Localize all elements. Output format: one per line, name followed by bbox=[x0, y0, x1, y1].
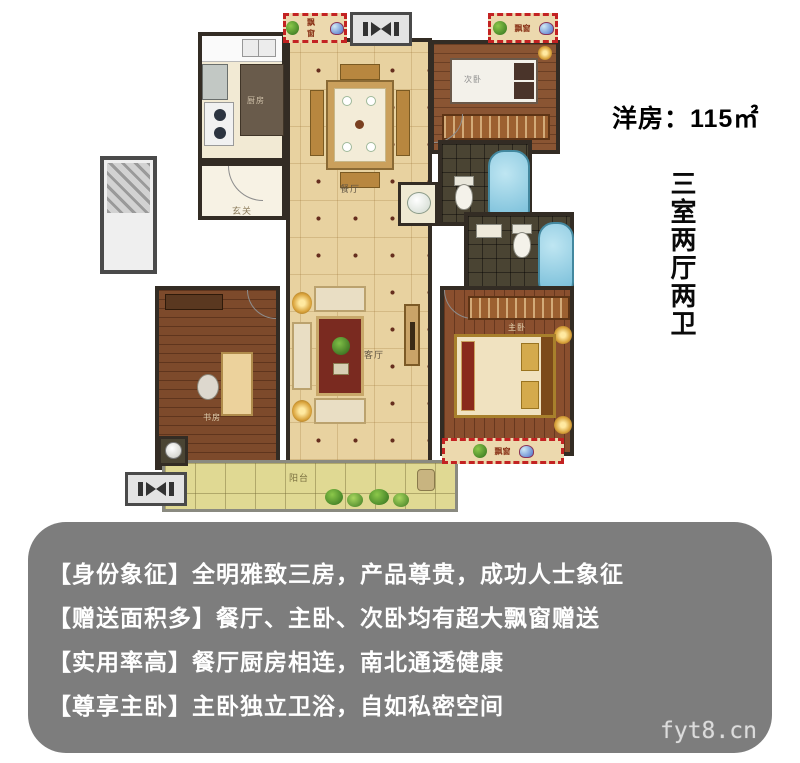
room-balcony: 阳台 bbox=[162, 460, 458, 512]
watermark: fyt8.cn bbox=[660, 718, 757, 744]
headboard bbox=[541, 337, 553, 415]
room-label-study: 书房 bbox=[203, 412, 221, 423]
bay-window-dining: 飘窗 bbox=[283, 13, 347, 43]
plant-icon bbox=[369, 489, 389, 505]
shell-icon bbox=[519, 445, 534, 458]
room-dining-living: 餐厅 客厅 bbox=[286, 38, 432, 470]
bedside-lamp bbox=[538, 46, 552, 60]
floor-lamp bbox=[292, 400, 312, 422]
plate-icon bbox=[342, 142, 352, 152]
kitchen-counter bbox=[202, 36, 282, 62]
basin-nook bbox=[398, 182, 438, 226]
sofa-side bbox=[292, 322, 312, 390]
stairs bbox=[107, 163, 150, 213]
dining-chair bbox=[310, 90, 324, 156]
ac-unit-icon bbox=[371, 22, 381, 36]
room-foyer: 玄关 bbox=[198, 162, 286, 220]
bed-secondary: 次卧 bbox=[450, 58, 538, 104]
bay-window-label: 飘窗 bbox=[515, 23, 531, 34]
shell-icon bbox=[330, 22, 344, 35]
ac-unit-top bbox=[350, 12, 412, 46]
pillow bbox=[521, 343, 539, 371]
bay-window-master: 飘窗 bbox=[442, 438, 564, 464]
ac-unit-icon bbox=[363, 22, 368, 36]
room-label-master: 主卧 bbox=[508, 322, 526, 333]
selling-point: 【赠送面积多】餐厅、主卧、次卧均有超大飘窗赠送 bbox=[48, 596, 772, 640]
selling-point: 【实用率高】餐厅厨房相连，南北通透健康 bbox=[48, 640, 772, 684]
sofa-bottom bbox=[314, 398, 366, 424]
fridge bbox=[202, 64, 228, 100]
plant-icon bbox=[393, 493, 409, 507]
shell-icon bbox=[539, 22, 554, 35]
floor-lamp bbox=[292, 292, 312, 314]
sink-icon bbox=[242, 39, 276, 57]
room-label-kitchen: 厨房 bbox=[247, 95, 265, 106]
plant-icon bbox=[325, 489, 343, 505]
plant-icon bbox=[286, 21, 299, 35]
washbasin-icon bbox=[407, 192, 431, 214]
burner-icon bbox=[214, 127, 226, 139]
pillow bbox=[514, 63, 534, 80]
dining-chair bbox=[396, 90, 410, 156]
room-label-living: 客厅 bbox=[364, 348, 384, 361]
nightstand-lamp bbox=[554, 326, 572, 344]
stove-icon bbox=[204, 102, 234, 146]
dining-chair bbox=[340, 64, 380, 80]
bay-window-label: 飘窗 bbox=[495, 446, 511, 457]
centerpiece bbox=[355, 120, 364, 129]
room-kitchen: 厨房 bbox=[198, 32, 286, 162]
kitchen-island: 厨房 bbox=[240, 64, 284, 136]
plate-icon bbox=[366, 96, 376, 106]
plant-icon bbox=[347, 493, 363, 507]
nightstand-lamp bbox=[554, 416, 572, 434]
bay-window-label: 飘窗 bbox=[307, 17, 322, 39]
ac-unit-icon bbox=[138, 482, 143, 496]
pillow bbox=[514, 82, 534, 99]
plate-icon bbox=[342, 96, 352, 106]
layout-label: 三室两厅两卫 bbox=[664, 170, 701, 338]
room-label-dining: 餐厅 bbox=[340, 182, 360, 195]
plate-icon bbox=[366, 142, 376, 152]
rug-plant-icon bbox=[332, 337, 350, 355]
entry-door-arc bbox=[228, 166, 263, 201]
pillow bbox=[521, 381, 539, 409]
common-area bbox=[100, 156, 157, 274]
sink-divider bbox=[258, 39, 259, 57]
room-master-bedroom: 主卧 bbox=[440, 286, 574, 456]
selling-point: 【身份象征】全明雅致三房，产品尊贵，成功人士象征 bbox=[48, 552, 772, 596]
vanity-icon bbox=[476, 224, 502, 238]
dining-table bbox=[326, 80, 394, 170]
floor-plan: 厨房 玄关 餐厅 bbox=[100, 8, 597, 510]
garden-ornament bbox=[417, 469, 435, 491]
sofa-top bbox=[314, 286, 366, 312]
wardrobe bbox=[468, 296, 570, 320]
tv-console bbox=[404, 304, 420, 366]
room-label-foyer: 玄关 bbox=[232, 204, 252, 217]
ac-unit-bottom bbox=[125, 472, 187, 506]
room-label-balcony: 阳台 bbox=[289, 471, 309, 484]
ac-unit-icon bbox=[146, 482, 156, 496]
ac-unit-icon bbox=[156, 482, 166, 496]
plant-icon bbox=[473, 444, 487, 458]
burner-icon bbox=[214, 109, 226, 121]
room-label-bedroom2: 次卧 bbox=[464, 74, 482, 85]
tv-icon bbox=[410, 322, 415, 350]
cabinet bbox=[165, 294, 223, 310]
living-rug bbox=[316, 316, 364, 396]
room-bedroom2: 次卧 bbox=[430, 40, 560, 154]
basin-icon bbox=[165, 442, 182, 459]
bed-runner bbox=[461, 341, 475, 411]
ac-unit-icon bbox=[394, 22, 399, 36]
desk bbox=[221, 352, 253, 416]
area-label: 洋房：115㎡ bbox=[612, 99, 759, 135]
toilet-icon bbox=[513, 232, 531, 258]
toilet-icon bbox=[455, 184, 473, 210]
plant-icon bbox=[493, 21, 507, 35]
mop-basin bbox=[158, 436, 188, 466]
coffee-tray bbox=[333, 363, 349, 375]
study-door-arc bbox=[247, 290, 276, 319]
ac-unit-icon bbox=[381, 22, 391, 36]
ac-unit-icon bbox=[169, 482, 174, 496]
bed-master bbox=[454, 334, 556, 418]
desk-chair bbox=[197, 374, 219, 400]
bay-window-bedroom2: 飘窗 bbox=[488, 13, 558, 43]
